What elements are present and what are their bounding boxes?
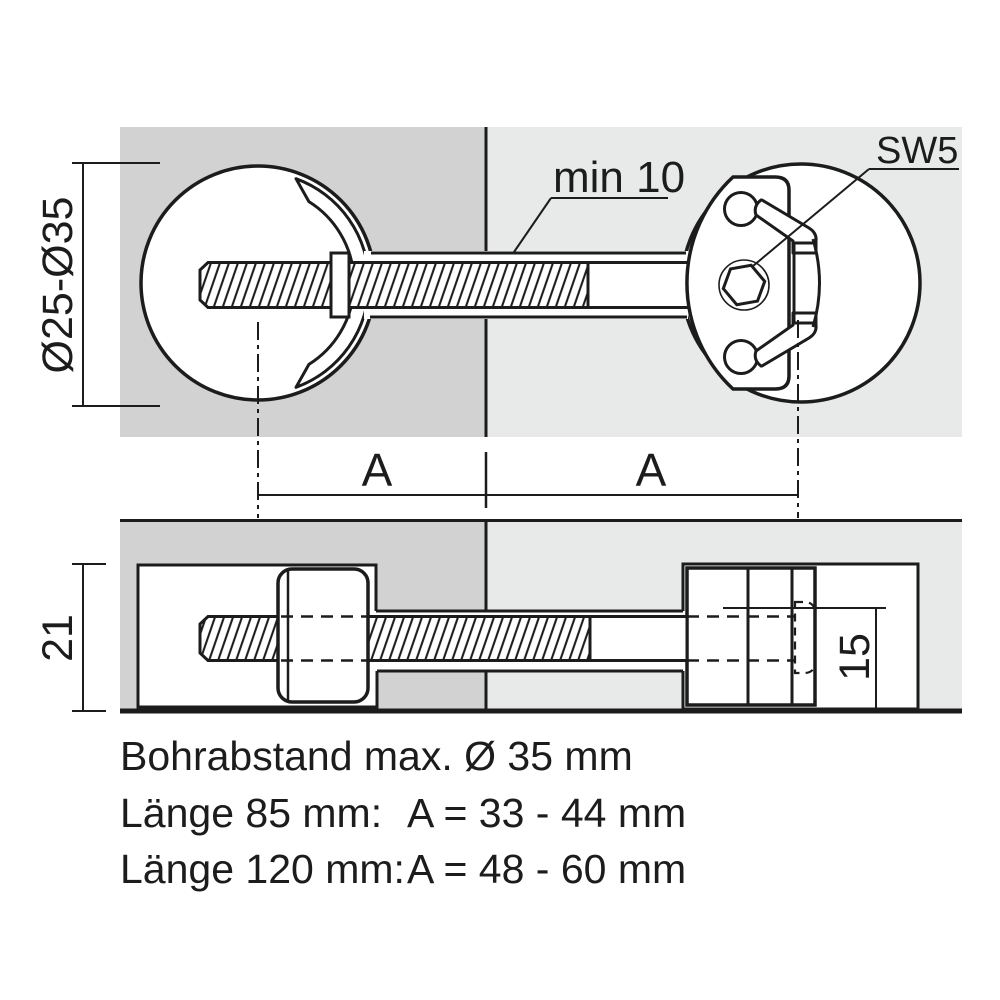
note-line-3-label: Länge 120 mm: (120, 846, 405, 892)
bolt-thread-middle (349, 263, 588, 308)
bolt-washer (331, 253, 349, 317)
note-line-2-value: A = 33 - 44 mm (407, 790, 686, 836)
wrench-size-label: SW5 (876, 130, 958, 172)
note-line-1: Bohrabstand max. Ø 35 mm (120, 733, 633, 779)
clamping-disc (278, 569, 368, 702)
depth-dimension: 21 (34, 564, 106, 711)
depth-dimension-label: 21 (34, 614, 82, 662)
drawing-canvas: Ø25-Ø35 min 10 SW5 A A (0, 0, 1000, 1000)
span-dimension-label-left: A (362, 444, 393, 496)
cap-hole-top (725, 193, 758, 226)
technical-drawing: Ø25-Ø35 min 10 SW5 A A (0, 0, 1000, 1000)
note-line-3-value: A = 48 - 60 mm (407, 846, 686, 892)
cap-hole-bottom (725, 341, 758, 374)
top-view: Ø25-Ø35 min 10 SW5 (34, 127, 962, 518)
note-line-2-label: Länge 85 mm: (120, 790, 382, 836)
bolt-thread-middle-section (368, 617, 590, 661)
bolt-shank-plain (588, 263, 691, 308)
span-dimension-label-right: A (636, 444, 667, 496)
diameter-dimension-label: Ø25-Ø35 (34, 197, 82, 374)
notes-block: Bohrabstand max. Ø 35 mm Länge 85 mm: A … (120, 733, 686, 892)
bolt-top-view (200, 253, 691, 317)
min-clearance-label: min 10 (553, 153, 685, 202)
span-dimension: A A (258, 444, 798, 508)
bolt-thread-left (200, 263, 331, 308)
bolt-thread-left-section (200, 617, 278, 661)
section-view: 21 15 (34, 519, 962, 712)
housing-block (687, 568, 815, 705)
bolt-shank-plain-section (590, 617, 687, 661)
height-dimension-label: 15 (831, 633, 879, 681)
